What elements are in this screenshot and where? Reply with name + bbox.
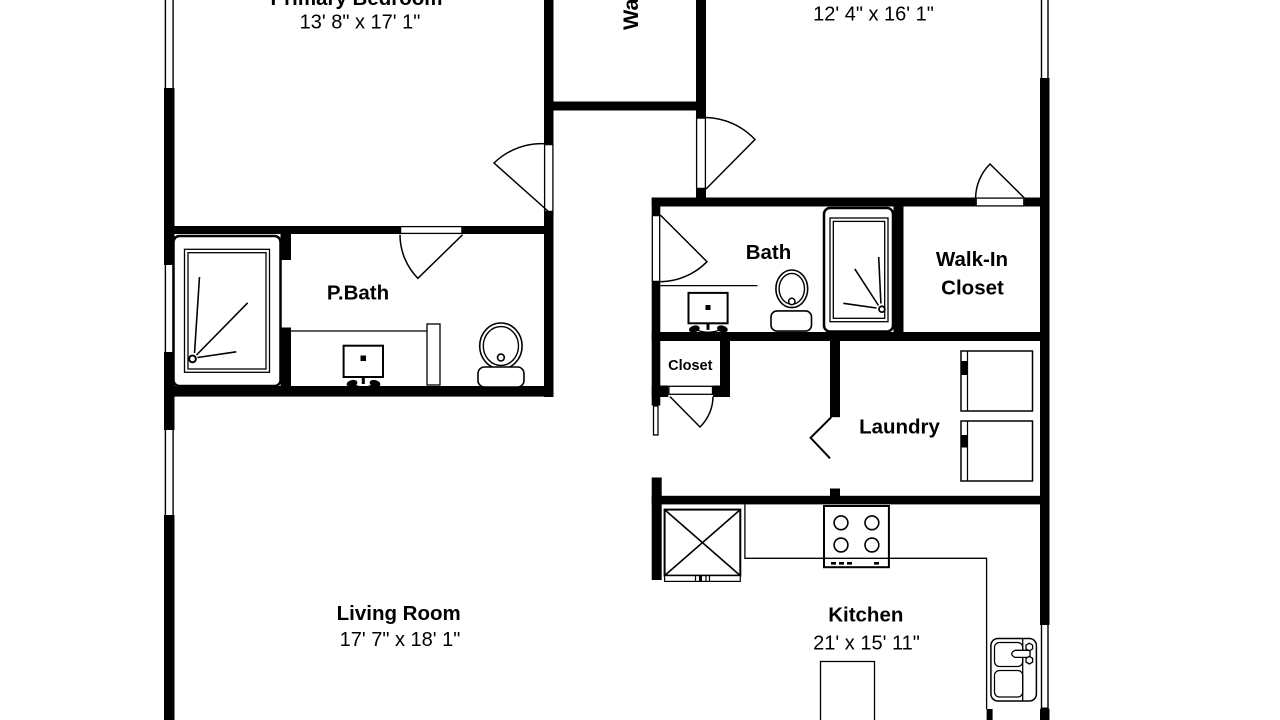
svg-text:Bath: Bath [746,241,792,264]
svg-text:21' x 15' 11": 21' x 15' 11" [813,633,920,655]
svg-text:Walk-In Closet: Walk-In Closet [619,0,643,30]
svg-text:Closet: Closet [668,358,712,374]
svg-text:13' 8" x 17' 1": 13' 8" x 17' 1" [300,12,421,34]
svg-text:Primary Bedroom: Primary Bedroom [270,0,442,10]
svg-text:Closet: Closet [941,277,1004,300]
svg-text:Living Room: Living Room [337,602,461,625]
svg-text:P.Bath: P.Bath [327,282,389,305]
svg-text:17' 7" x 18' 1": 17' 7" x 18' 1" [340,629,461,651]
svg-text:Laundry: Laundry [859,415,940,438]
svg-text:Kitchen: Kitchen [828,604,903,627]
svg-text:Walk-In: Walk-In [936,248,1008,271]
svg-text:12' 4" x 16' 1": 12' 4" x 16' 1" [813,4,934,26]
